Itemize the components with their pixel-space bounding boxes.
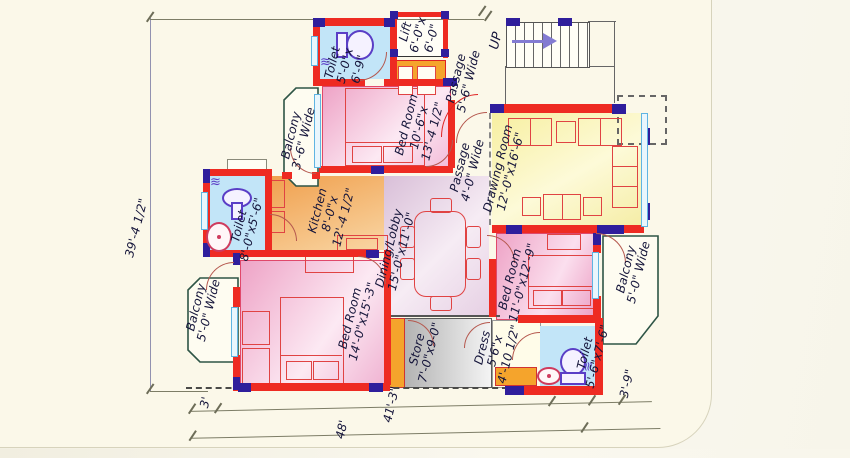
- furniture-tv-unit: [547, 234, 581, 250]
- furniture-wardrobe: [242, 348, 270, 384]
- column: [390, 49, 398, 57]
- wall: [265, 169, 272, 257]
- furniture-wardrobe: [242, 311, 270, 345]
- floor-plan: 39'-4 1/2" 3' 41'-3" 48' 3'-9": [0, 0, 850, 449]
- column: [390, 11, 398, 19]
- bed-pillow: [286, 361, 312, 380]
- column: [490, 104, 504, 113]
- column: [313, 18, 325, 27]
- column: [441, 11, 449, 19]
- dimension-label-48: 48': [334, 419, 351, 440]
- kitchen-stove-inner: [346, 238, 378, 250]
- dimension-label-3-9: 3'-9": [618, 368, 638, 399]
- window: [311, 36, 318, 66]
- wall: [282, 172, 292, 179]
- tick: [214, 403, 222, 414]
- stairs-up-arrowhead: [543, 33, 557, 49]
- label-line: 3': [198, 396, 214, 410]
- outline: [588, 66, 615, 67]
- column: [203, 169, 210, 183]
- wall: [319, 166, 453, 173]
- column: [612, 104, 626, 114]
- dimension-line: [191, 428, 661, 439]
- dining-chair: [430, 296, 452, 311]
- bed-line: [280, 355, 342, 356]
- stairs-up-arrow: [512, 40, 544, 43]
- column: [384, 18, 395, 27]
- column: [505, 386, 524, 395]
- furniture-sofa: [578, 118, 622, 146]
- dimension-label-3ft: 3': [198, 396, 214, 410]
- furniture-dresser: [305, 255, 354, 273]
- furniture-table: [522, 197, 541, 216]
- wall: [504, 104, 614, 113]
- dining-table: [414, 211, 466, 297]
- bed-pillow: [562, 290, 591, 306]
- column: [371, 166, 384, 174]
- label-line: 3'-9": [618, 368, 638, 399]
- tick: [188, 403, 196, 414]
- window: [201, 192, 208, 230]
- outline: [505, 66, 506, 104]
- wall: [233, 287, 240, 307]
- column: [366, 250, 379, 258]
- tick: [580, 422, 588, 433]
- column: [369, 383, 383, 392]
- column: [238, 383, 251, 392]
- outline: [614, 21, 615, 103]
- window: [641, 113, 648, 227]
- bed-pillow: [352, 146, 382, 163]
- label-line: 48': [334, 419, 351, 440]
- label-line: 41'-3": [381, 385, 402, 424]
- wall: [233, 383, 390, 391]
- furniture-sofa: [543, 194, 581, 220]
- bed-line: [528, 286, 594, 287]
- bed-pillow: [533, 290, 562, 306]
- column: [506, 18, 520, 26]
- outline: [588, 21, 616, 22]
- window: [231, 307, 238, 357]
- wall: [489, 259, 496, 317]
- dimension-line: [190, 401, 652, 412]
- dining-chair: [466, 226, 481, 248]
- dimension-label-41-3: 41'-3": [381, 385, 402, 424]
- washbasin-icon: [537, 367, 561, 385]
- furniture-table: [583, 197, 602, 216]
- wall: [265, 250, 369, 257]
- dining-chair: [466, 258, 481, 280]
- tick: [189, 430, 197, 441]
- shower-icon: ≋: [210, 176, 221, 189]
- furniture-sofa-long: [612, 146, 638, 208]
- column: [441, 49, 449, 57]
- furniture-table: [556, 121, 576, 143]
- tick: [548, 396, 556, 407]
- bed-pillow: [313, 361, 339, 380]
- column: [558, 18, 572, 26]
- dining-chair: [430, 198, 452, 213]
- tick: [588, 395, 596, 406]
- column: [506, 225, 522, 234]
